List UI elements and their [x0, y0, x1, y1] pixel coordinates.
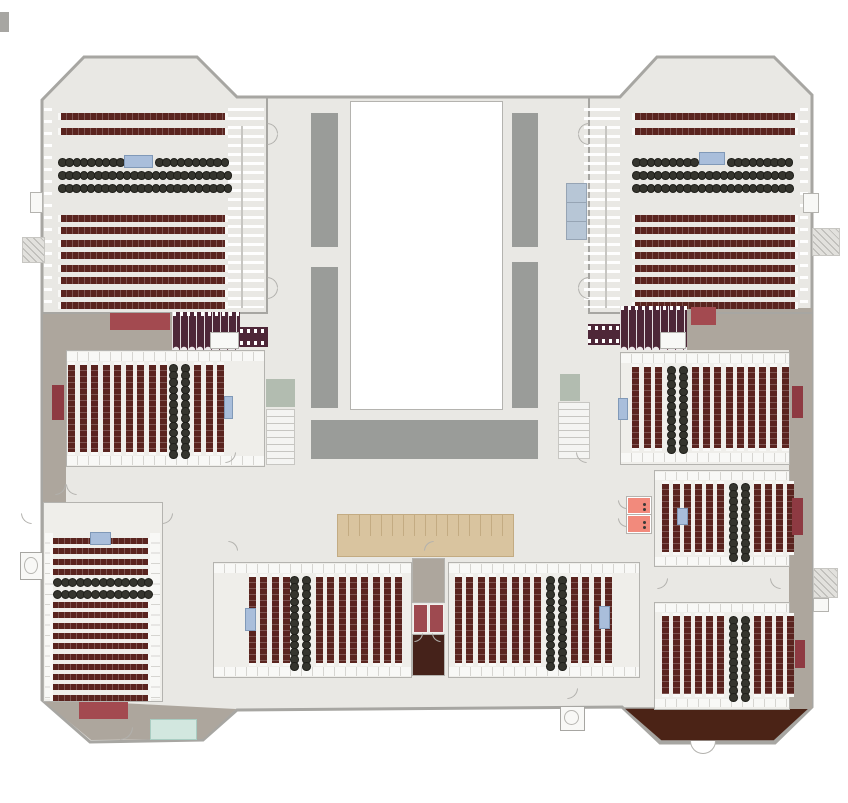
bookshelf [655, 364, 662, 451]
bookshelf [632, 215, 798, 222]
study-strip-east-wing [584, 108, 620, 308]
capband [449, 667, 639, 676]
seat [302, 662, 311, 671]
bookshelf [632, 252, 798, 259]
bookshelf [632, 265, 798, 272]
bookshelf [632, 227, 798, 234]
bookshelf [149, 362, 156, 455]
fixture-dot [643, 508, 646, 511]
capband [67, 352, 264, 361]
capband [655, 472, 789, 480]
bookshelf [126, 362, 133, 455]
bookshelf [706, 481, 713, 555]
wall-cabinet-red [792, 498, 803, 535]
seating-row-nw-1a [58, 158, 123, 165]
bookshelf [58, 252, 228, 259]
bookshelf [717, 613, 724, 697]
carrel-desks [620, 306, 687, 310]
wc-room-1 [627, 497, 651, 514]
seat [169, 450, 178, 459]
counter-ticks [338, 515, 513, 536]
corridor-block-ne [512, 113, 538, 247]
bookshelf [395, 574, 402, 666]
core-room-red-2 [429, 604, 444, 633]
legend-fragment [0, 12, 9, 32]
bookshelf [765, 613, 772, 697]
reading-table-nw [124, 155, 153, 168]
seat [679, 445, 688, 454]
stairs-east [558, 402, 590, 459]
seating-row-nw-2 [58, 171, 230, 178]
bookshelf [706, 613, 713, 697]
bookshelf [50, 654, 151, 660]
service-desk-west [210, 332, 239, 349]
bookshelf [91, 362, 98, 455]
floor-plan-canvas [0, 0, 848, 803]
bookshelf [714, 364, 721, 451]
bookshelf [717, 481, 724, 555]
capband [214, 564, 411, 573]
seating-row-nw-3 [58, 184, 230, 191]
wall-table-blue [224, 396, 233, 419]
central-courtyard [350, 101, 503, 410]
reading-table-k [90, 532, 111, 545]
bookshelf [703, 364, 710, 451]
bookshelf [68, 362, 75, 455]
lift-lobby-east [560, 374, 580, 401]
bookshelf [726, 364, 733, 451]
seating-row-ne-1b [727, 158, 791, 165]
spiral-circle [564, 710, 579, 725]
bookshelf [50, 643, 151, 649]
bookshelf [523, 574, 530, 666]
seat-row [53, 590, 151, 597]
capband [621, 354, 789, 363]
wall-table-blue [618, 398, 628, 420]
bookshelf [754, 481, 761, 555]
bookshelf [80, 362, 87, 455]
bookshelf [50, 664, 151, 670]
seat-col [546, 576, 553, 669]
bookshelf [673, 613, 680, 697]
seat [785, 158, 794, 167]
bookshelf [58, 240, 228, 247]
bookshelf [782, 364, 789, 451]
bay-ne [803, 193, 819, 213]
seat [741, 693, 750, 702]
seat [224, 171, 233, 180]
bookshelf [50, 569, 151, 575]
bookshelf [327, 574, 334, 666]
reading-table-ne [699, 152, 725, 165]
seat-col [679, 366, 686, 452]
study-strip-west-wing [228, 108, 264, 308]
bookshelf [58, 215, 228, 222]
seat [785, 184, 794, 193]
bookstacks-ne-lower [632, 215, 798, 309]
spiral-circle [24, 557, 38, 574]
bookstacks-nw-upper [58, 113, 228, 135]
bookshelf [632, 290, 798, 297]
bookshelf [50, 548, 151, 554]
bookshelf [695, 613, 702, 697]
bookshelf [455, 574, 462, 666]
bookshelf [272, 574, 279, 666]
bookshelf [206, 362, 213, 455]
bookshelf [632, 240, 798, 247]
seating-row-ne-1a [632, 158, 697, 165]
stacks-east-a [632, 364, 662, 451]
seat-col [729, 616, 736, 700]
seat [221, 158, 230, 167]
bookshelf [466, 574, 473, 666]
bookshelf [137, 362, 144, 455]
window-band-west [44, 108, 52, 308]
bookshelf [632, 277, 798, 284]
bookstacks-nw-lower [58, 215, 228, 309]
seat-col [181, 364, 188, 457]
bookshelf [684, 613, 691, 697]
elevator-bank [566, 183, 587, 240]
corridor-block-se [512, 262, 538, 408]
capband [655, 604, 789, 612]
bookshelf [283, 574, 290, 666]
carrel-ext-east [588, 324, 620, 345]
stacks-se-a [455, 574, 541, 666]
stacks-west-b [194, 362, 224, 455]
bookshelf [361, 574, 368, 666]
seating-row-ne-3 [632, 184, 792, 191]
bookshelf [748, 364, 755, 451]
balcony-nw [22, 237, 45, 263]
bookshelf [512, 574, 519, 666]
wall-cabinet-red [795, 640, 805, 668]
bookshelf [194, 362, 201, 455]
bookshelf [632, 364, 639, 451]
bookshelf [582, 574, 589, 666]
bookshelf [632, 128, 798, 135]
capband [449, 564, 639, 573]
copy-room-east [691, 307, 716, 325]
bookshelf [500, 574, 507, 666]
capband [150, 533, 160, 699]
kiosk-mint-sw [150, 719, 197, 740]
bookshelf [787, 613, 794, 697]
bookshelf [50, 623, 151, 629]
seat-col [729, 483, 736, 560]
seat-col [667, 366, 674, 452]
capband [621, 453, 789, 462]
corridor-block-sw [311, 267, 338, 408]
bookshelf [50, 684, 151, 690]
seat [224, 184, 233, 193]
bookshelf [103, 362, 110, 455]
stacks-east-south-a [662, 613, 724, 697]
seat [290, 662, 299, 671]
bookshelf [260, 574, 267, 666]
seat [729, 693, 738, 702]
spiral-stair-west [20, 552, 43, 580]
bookshelf [58, 302, 228, 309]
stacks-k-lower [50, 602, 151, 701]
bookshelf [50, 695, 151, 701]
bookshelf [58, 128, 228, 135]
wall-table-blue [599, 606, 610, 629]
seat [558, 662, 567, 671]
bookshelf [695, 481, 702, 555]
stacks-east-b [692, 364, 789, 451]
capband [655, 699, 789, 707]
bookshelf [632, 113, 798, 120]
service-desk-east [660, 332, 686, 349]
stacks-sw-b [316, 574, 402, 666]
seating-row-nw-1b [155, 158, 227, 165]
bookshelf [754, 613, 761, 697]
bookshelf [350, 574, 357, 666]
bay-nw [30, 192, 43, 213]
stacks-east-mid-a [662, 481, 724, 555]
bookshelf [58, 265, 228, 272]
bookshelf [50, 612, 151, 618]
rail-west-wing [241, 126, 243, 308]
seat-col [741, 483, 748, 560]
capband [655, 557, 789, 565]
capband [214, 667, 411, 676]
seat-col [169, 364, 176, 457]
bookshelf [114, 362, 121, 455]
bookshelf [50, 674, 151, 680]
seat [729, 553, 738, 562]
stairs-west [266, 409, 295, 465]
seat [690, 158, 699, 167]
bookshelf [316, 574, 323, 666]
fixture-dot [643, 521, 646, 524]
bookshelf [160, 362, 167, 455]
bookshelf [478, 574, 485, 666]
corridor-block-nw [311, 113, 338, 247]
balcony-se [813, 568, 838, 598]
bookshelf [534, 574, 541, 666]
bookshelf [373, 574, 380, 666]
rail-east-wing [605, 126, 607, 308]
bookshelf [217, 362, 224, 455]
wall-cabinet-red [52, 385, 64, 420]
fixture-dot [643, 503, 646, 506]
corridor-bar-south [311, 420, 538, 459]
bay-se [813, 598, 829, 612]
copy-room-west [110, 313, 170, 330]
bookshelf [692, 364, 699, 451]
bookshelf [50, 633, 151, 639]
stacks-east-south-b [754, 613, 794, 697]
bookshelf [571, 574, 578, 666]
storage-red-sw [79, 702, 128, 719]
bookshelf [776, 613, 783, 697]
bookshelf [644, 364, 651, 451]
seating-row-ne-2 [632, 171, 792, 178]
bookshelf [489, 574, 496, 666]
bookshelf [50, 559, 151, 565]
bookshelf [339, 574, 346, 666]
seat [741, 553, 750, 562]
fixture-dot [643, 526, 646, 529]
balcony-ne [812, 228, 840, 256]
seat [667, 445, 676, 454]
seat [181, 450, 190, 459]
carrel-ext-west [240, 327, 268, 347]
stacks-west-a [68, 362, 167, 455]
seat-col [558, 576, 565, 669]
bookshelf [770, 364, 777, 451]
wall-cabinet-red [792, 386, 803, 418]
seat-col [741, 616, 748, 700]
bookshelf [58, 277, 228, 284]
core-room-red-1 [413, 604, 428, 633]
seat [785, 171, 794, 180]
lift-lobby-west [266, 379, 295, 407]
wc-room-2 [627, 515, 651, 533]
bookshelf [50, 602, 151, 608]
seat-col [302, 576, 309, 669]
bookshelf [662, 481, 669, 555]
bookshelf [776, 481, 783, 555]
bookshelf [759, 364, 766, 451]
core-block-gray [412, 558, 445, 603]
bookshelf [58, 290, 228, 297]
bookstacks-ne-upper [632, 113, 798, 135]
spiral-stair-south [560, 706, 585, 731]
bookshelf [384, 574, 391, 666]
bookshelf [765, 481, 772, 555]
wall-table-blue [245, 608, 256, 631]
bookshelf [58, 113, 228, 120]
seat-col [290, 576, 297, 669]
bookshelf [737, 364, 744, 451]
bookshelf [58, 227, 228, 234]
seat [546, 662, 555, 671]
carrel-desks [172, 312, 240, 316]
stacks-east-mid-b [754, 481, 794, 555]
seat-row [53, 578, 151, 585]
wall-table-blue [677, 508, 688, 525]
bookshelf [662, 613, 669, 697]
